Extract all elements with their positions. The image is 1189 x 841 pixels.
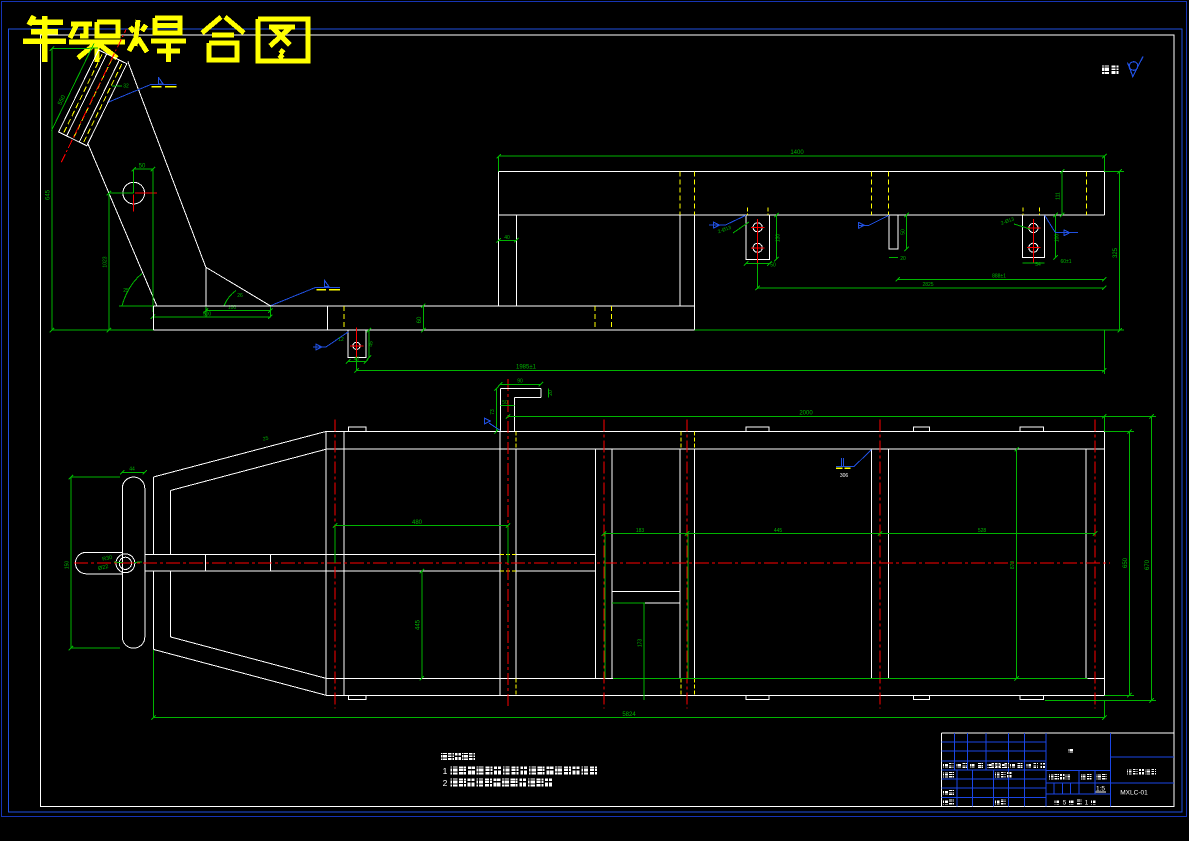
svg-text:2: 2: [443, 778, 448, 788]
svg-text:2000: 2000: [799, 411, 813, 417]
svg-text:183: 183: [636, 528, 645, 534]
svg-text:111: 111: [1056, 192, 1062, 200]
svg-text:528: 528: [978, 528, 987, 534]
svg-text:445: 445: [774, 528, 783, 534]
svg-text:325: 325: [1113, 247, 1119, 258]
svg-text:150: 150: [64, 561, 70, 570]
svg-text:306: 306: [840, 473, 849, 479]
svg-text:60: 60: [417, 316, 423, 323]
svg-text:20: 20: [548, 390, 554, 396]
svg-text:1:5: 1:5: [1096, 786, 1105, 793]
svg-text:100: 100: [1055, 234, 1061, 243]
svg-text:26: 26: [237, 293, 243, 299]
svg-text:54: 54: [1035, 262, 1041, 268]
svg-text:45: 45: [369, 341, 375, 347]
svg-text:50: 50: [139, 164, 146, 170]
svg-text:1: 1: [443, 766, 448, 776]
svg-text:888±1: 888±1: [992, 274, 1006, 280]
svg-text:MXLC-01: MXLC-01: [1120, 790, 1148, 797]
svg-text:73: 73: [490, 409, 496, 415]
svg-text:25: 25: [123, 288, 129, 294]
svg-text:50: 50: [770, 263, 776, 269]
svg-text:445: 445: [415, 619, 421, 630]
svg-text:1985±1: 1985±1: [516, 365, 537, 371]
svg-text:90: 90: [517, 379, 523, 385]
svg-text:500: 500: [203, 312, 212, 318]
svg-text:60±1: 60±1: [1060, 259, 1071, 265]
svg-text:44: 44: [129, 467, 135, 473]
svg-text:1023: 1023: [103, 256, 109, 267]
svg-text:50: 50: [502, 400, 508, 406]
svg-text:870: 870: [1010, 561, 1016, 570]
svg-text:2825: 2825: [922, 282, 933, 288]
svg-text:5: 5: [1063, 799, 1067, 806]
svg-text:50: 50: [900, 229, 906, 235]
svg-text:645: 645: [46, 189, 52, 200]
svg-text:173: 173: [637, 639, 643, 648]
svg-text:12: 12: [338, 337, 344, 343]
svg-text:130: 130: [776, 234, 782, 243]
svg-text:1: 1: [1085, 799, 1089, 806]
svg-text:480: 480: [412, 520, 423, 526]
svg-text:20: 20: [900, 256, 906, 262]
svg-text:5824: 5824: [622, 712, 636, 718]
svg-text:40: 40: [504, 235, 510, 241]
svg-text:32: 32: [123, 84, 129, 90]
svg-text:670: 670: [1145, 559, 1151, 570]
svg-text:1400: 1400: [790, 150, 804, 156]
svg-text:650: 650: [1123, 557, 1129, 568]
